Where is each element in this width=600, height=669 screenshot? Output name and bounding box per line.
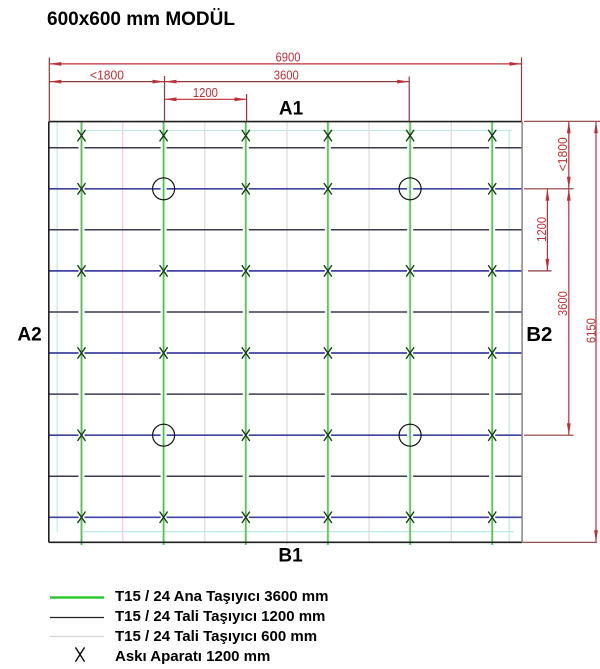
svg-text:A1: A1 <box>279 99 304 120</box>
svg-text:3600: 3600 <box>555 291 570 316</box>
svg-text:T15 / 24 Tali Taşıyıcı 1200 mm: T15 / 24 Tali Taşıyıcı 1200 mm <box>115 608 325 625</box>
svg-text:T15 / 24 Tali Taşıyıcı 600 mm: T15 / 24 Tali Taşıyıcı 600 mm <box>115 628 317 645</box>
svg-text:T15 / 24 Ana Taşıyıcı 3600 mm: T15 / 24 Ana Taşıyıcı 3600 mm <box>115 588 328 605</box>
svg-text:600x600 mm MODÜL: 600x600 mm MODÜL <box>47 9 235 30</box>
svg-text:3600: 3600 <box>274 67 299 82</box>
svg-text:<1800: <1800 <box>555 137 570 171</box>
svg-text:<1800: <1800 <box>90 67 124 82</box>
svg-text:6900: 6900 <box>276 49 301 64</box>
svg-text:1200: 1200 <box>193 85 218 100</box>
svg-text:6150: 6150 <box>583 318 598 343</box>
svg-text:B2: B2 <box>526 323 552 346</box>
svg-text:Askı Aparatı 1200 mm: Askı Aparatı 1200 mm <box>115 648 270 665</box>
svg-text:B1: B1 <box>278 545 303 566</box>
svg-text:A2: A2 <box>17 325 41 346</box>
svg-text:1200: 1200 <box>534 217 549 242</box>
